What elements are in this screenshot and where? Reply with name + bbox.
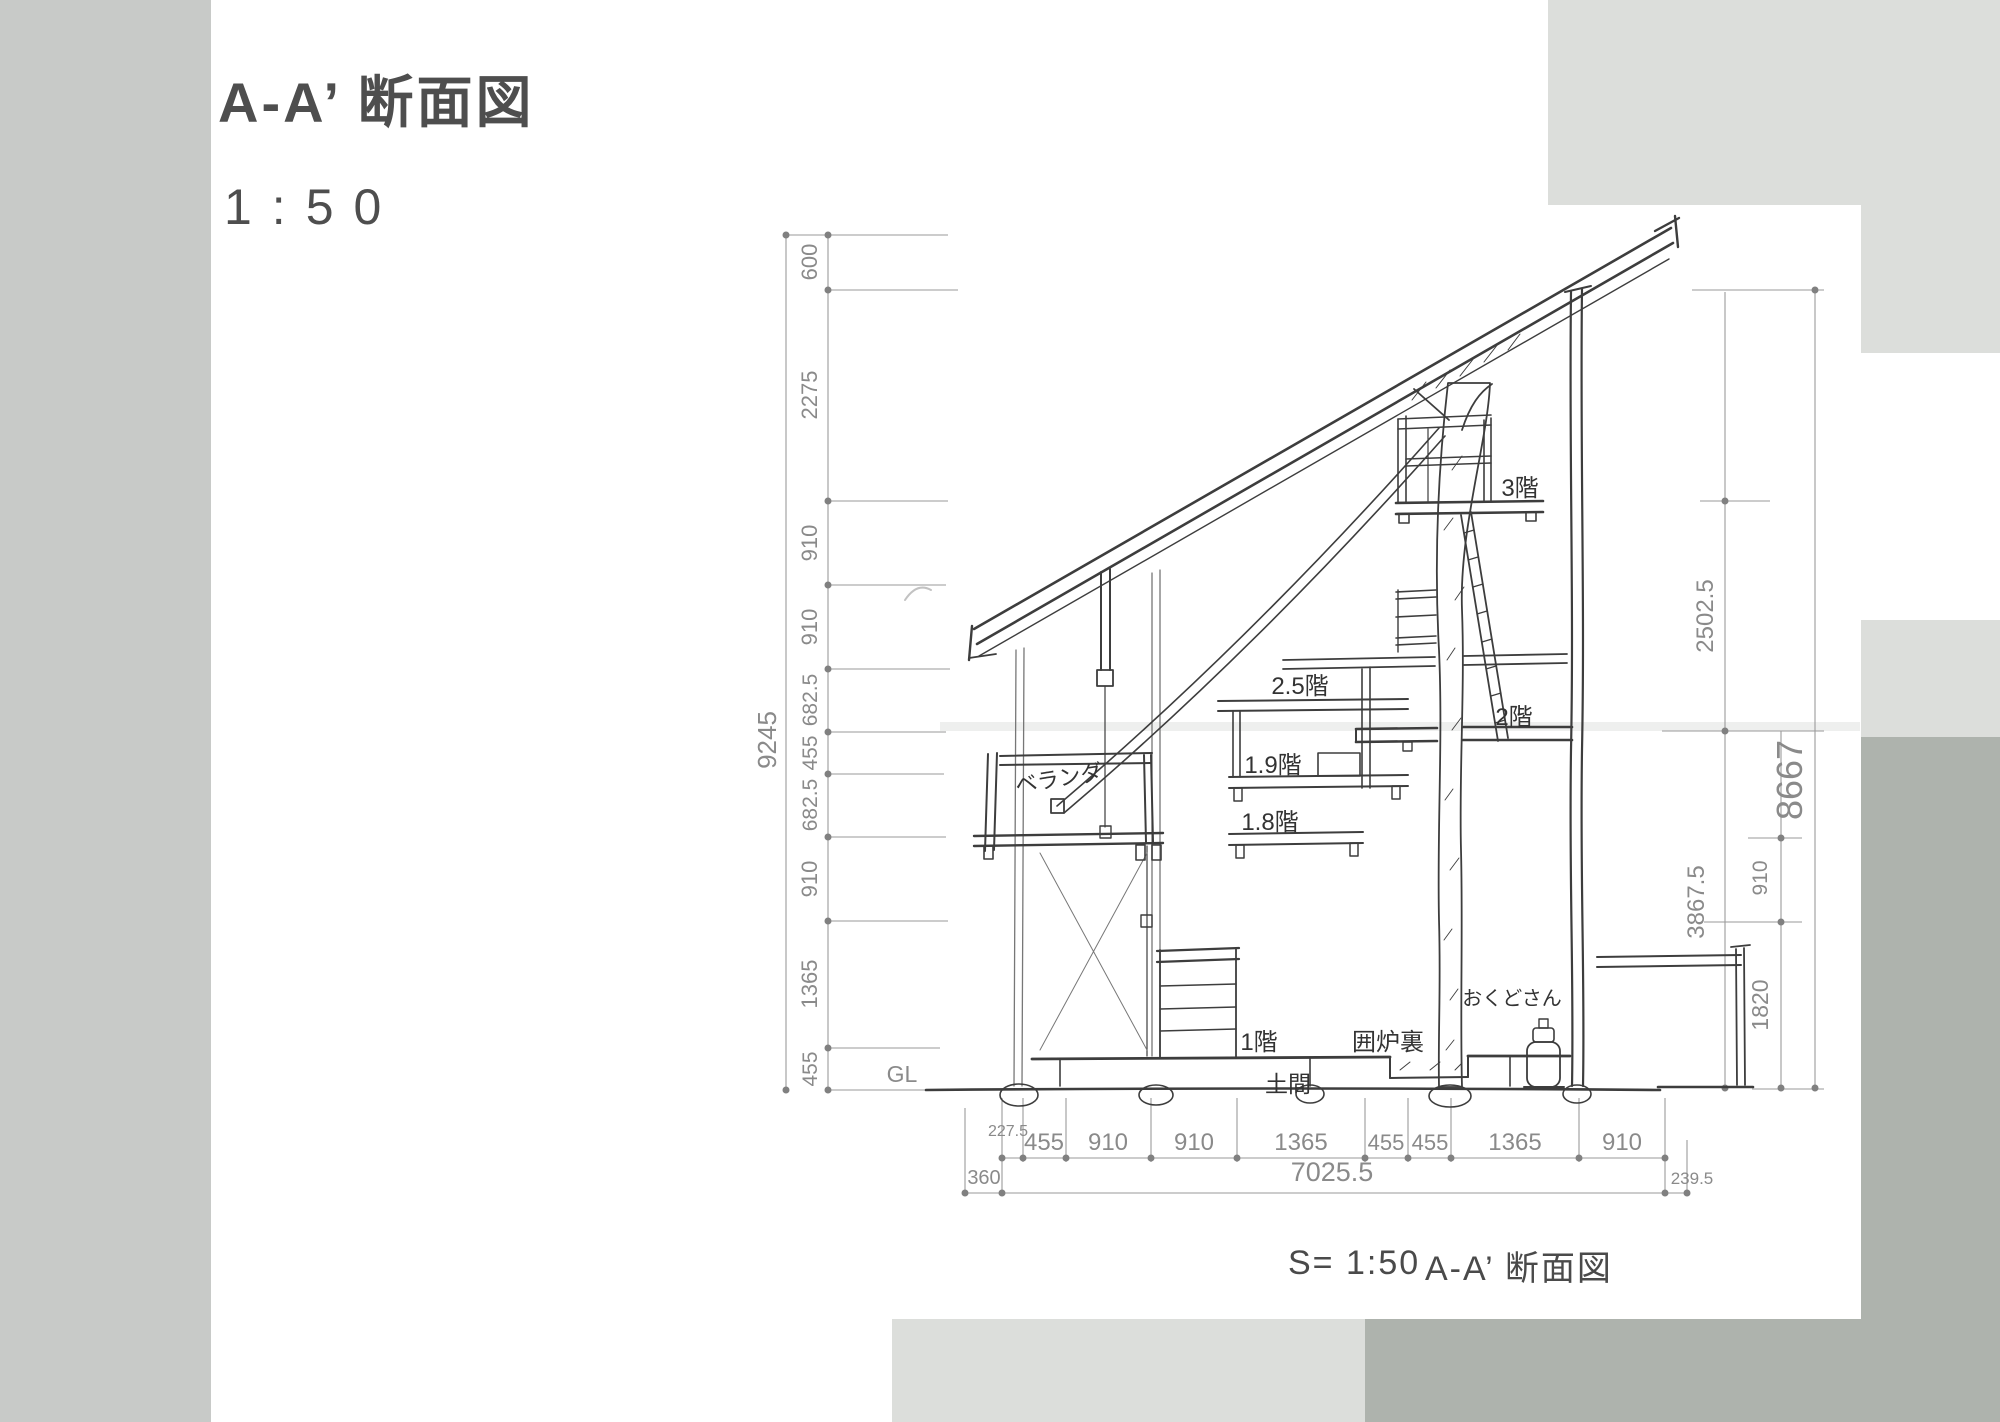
dim-right-upper-1: 3867.5 bbox=[1683, 865, 1710, 938]
label-floor3: 3階 bbox=[1501, 475, 1538, 502]
bottom-dimension-chain: 227.5 455 910 910 1365 455 455 1365 910 … bbox=[962, 1098, 1714, 1197]
dim-right-lower-1: 1820 bbox=[1747, 979, 1773, 1030]
ground-floor bbox=[926, 948, 1753, 1107]
label-floor19: 1.9階 bbox=[1244, 752, 1301, 779]
left-dimension-chain: 9245 600 2275 910 910 682.5 455 682.5 91… bbox=[752, 232, 958, 1094]
dim-bottom-5: 455 bbox=[1368, 1130, 1405, 1155]
dim-bottom-3: 910 bbox=[1174, 1129, 1214, 1156]
dim-bottom-0: 227.5 bbox=[988, 1123, 1028, 1140]
label-floor18: 1.8階 bbox=[1241, 809, 1298, 836]
page: A-A’ 断面図 1:50 9245 bbox=[0, 0, 2000, 1422]
dim-left-total: 9245 bbox=[752, 711, 782, 769]
dim-left-4: 682.5 bbox=[799, 674, 822, 727]
dim-right-upper-0: 2502.5 bbox=[1692, 579, 1719, 652]
dim-left-1: 2275 bbox=[797, 371, 822, 420]
label-irori: 囲炉裏 bbox=[1352, 1029, 1424, 1056]
dim-bottom-4: 1365 bbox=[1274, 1129, 1327, 1156]
label-floor2: 2階 bbox=[1495, 704, 1532, 731]
dim-right-total: 8667 bbox=[1769, 740, 1810, 820]
okudo-stove bbox=[1524, 1019, 1564, 1087]
dim-bottom-1: 455 bbox=[1024, 1129, 1064, 1156]
section-drawing-svg: 9245 600 2275 910 910 682.5 455 682.5 91… bbox=[0, 0, 2000, 1422]
label-doma: 土間 bbox=[1265, 1071, 1311, 1097]
dim-bottom-7: 1365 bbox=[1488, 1129, 1541, 1156]
dim-right-lower-0: 910 bbox=[1749, 860, 1772, 895]
posts bbox=[1014, 569, 1160, 1086]
dim-bottom-6: 455 bbox=[1412, 1130, 1449, 1155]
tree-column bbox=[1414, 383, 1492, 1087]
label-floor1: 1階 bbox=[1240, 1029, 1277, 1056]
right-dimension-chain: 2502.5 3867.5 910 1820 8667 bbox=[1662, 287, 1824, 1092]
dim-left-5: 455 bbox=[799, 735, 822, 770]
dim-left-2: 910 bbox=[797, 525, 822, 562]
dim-left-6: 682.5 bbox=[799, 779, 822, 832]
pencil-smudge bbox=[905, 588, 931, 600]
right-wall bbox=[1565, 286, 1750, 1086]
label-ground-line: GL bbox=[887, 1061, 918, 1087]
dim-bottom-left-offset: 360 bbox=[967, 1167, 1000, 1189]
dim-left-0: 600 bbox=[797, 244, 822, 281]
dim-bottom-8: 910 bbox=[1602, 1129, 1642, 1156]
dim-left-7: 910 bbox=[797, 861, 822, 898]
dim-bottom-right-offset: 239.5 bbox=[1671, 1169, 1714, 1188]
dim-left-9: 455 bbox=[799, 1051, 822, 1086]
dim-bottom-total: 7025.5 bbox=[1291, 1157, 1374, 1187]
label-okudo: おくどさん bbox=[1462, 987, 1561, 1010]
label-floor25: 2.5階 bbox=[1271, 673, 1328, 700]
caption: S= 1:50 A-A’ 断面図 bbox=[1288, 1244, 1613, 1288]
dim-bottom-2: 910 bbox=[1088, 1129, 1128, 1156]
caption-title: A-A’ 断面図 bbox=[1425, 1250, 1613, 1288]
caption-scale: S= 1:50 bbox=[1288, 1244, 1420, 1282]
dim-left-3: 910 bbox=[797, 609, 822, 646]
dim-left-8: 1365 bbox=[797, 960, 822, 1009]
